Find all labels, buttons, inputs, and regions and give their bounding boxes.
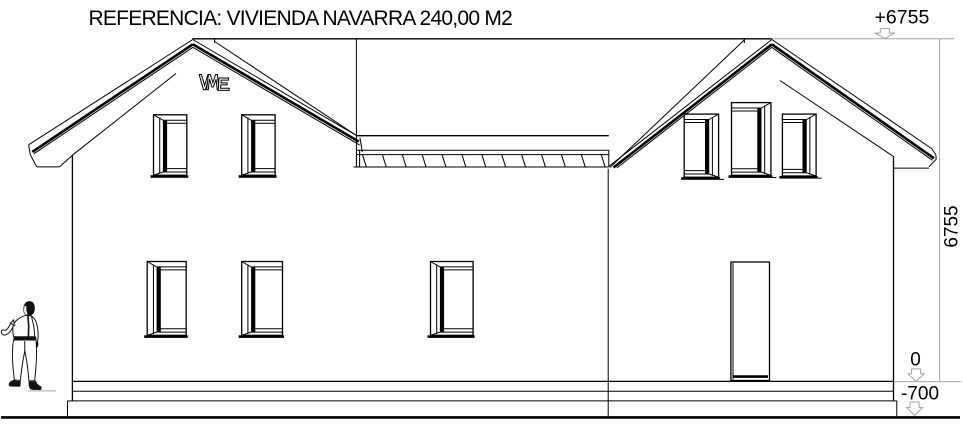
svg-text:0: 0 xyxy=(910,349,921,370)
svg-text:-700: -700 xyxy=(901,383,939,404)
svg-text:6755: 6755 xyxy=(942,205,963,247)
svg-text:REFERENCIA: VIVIENDA NAVARRA 2: REFERENCIA: VIVIENDA NAVARRA 240,00 M2 xyxy=(89,7,513,30)
svg-text:+6755: +6755 xyxy=(875,6,930,28)
